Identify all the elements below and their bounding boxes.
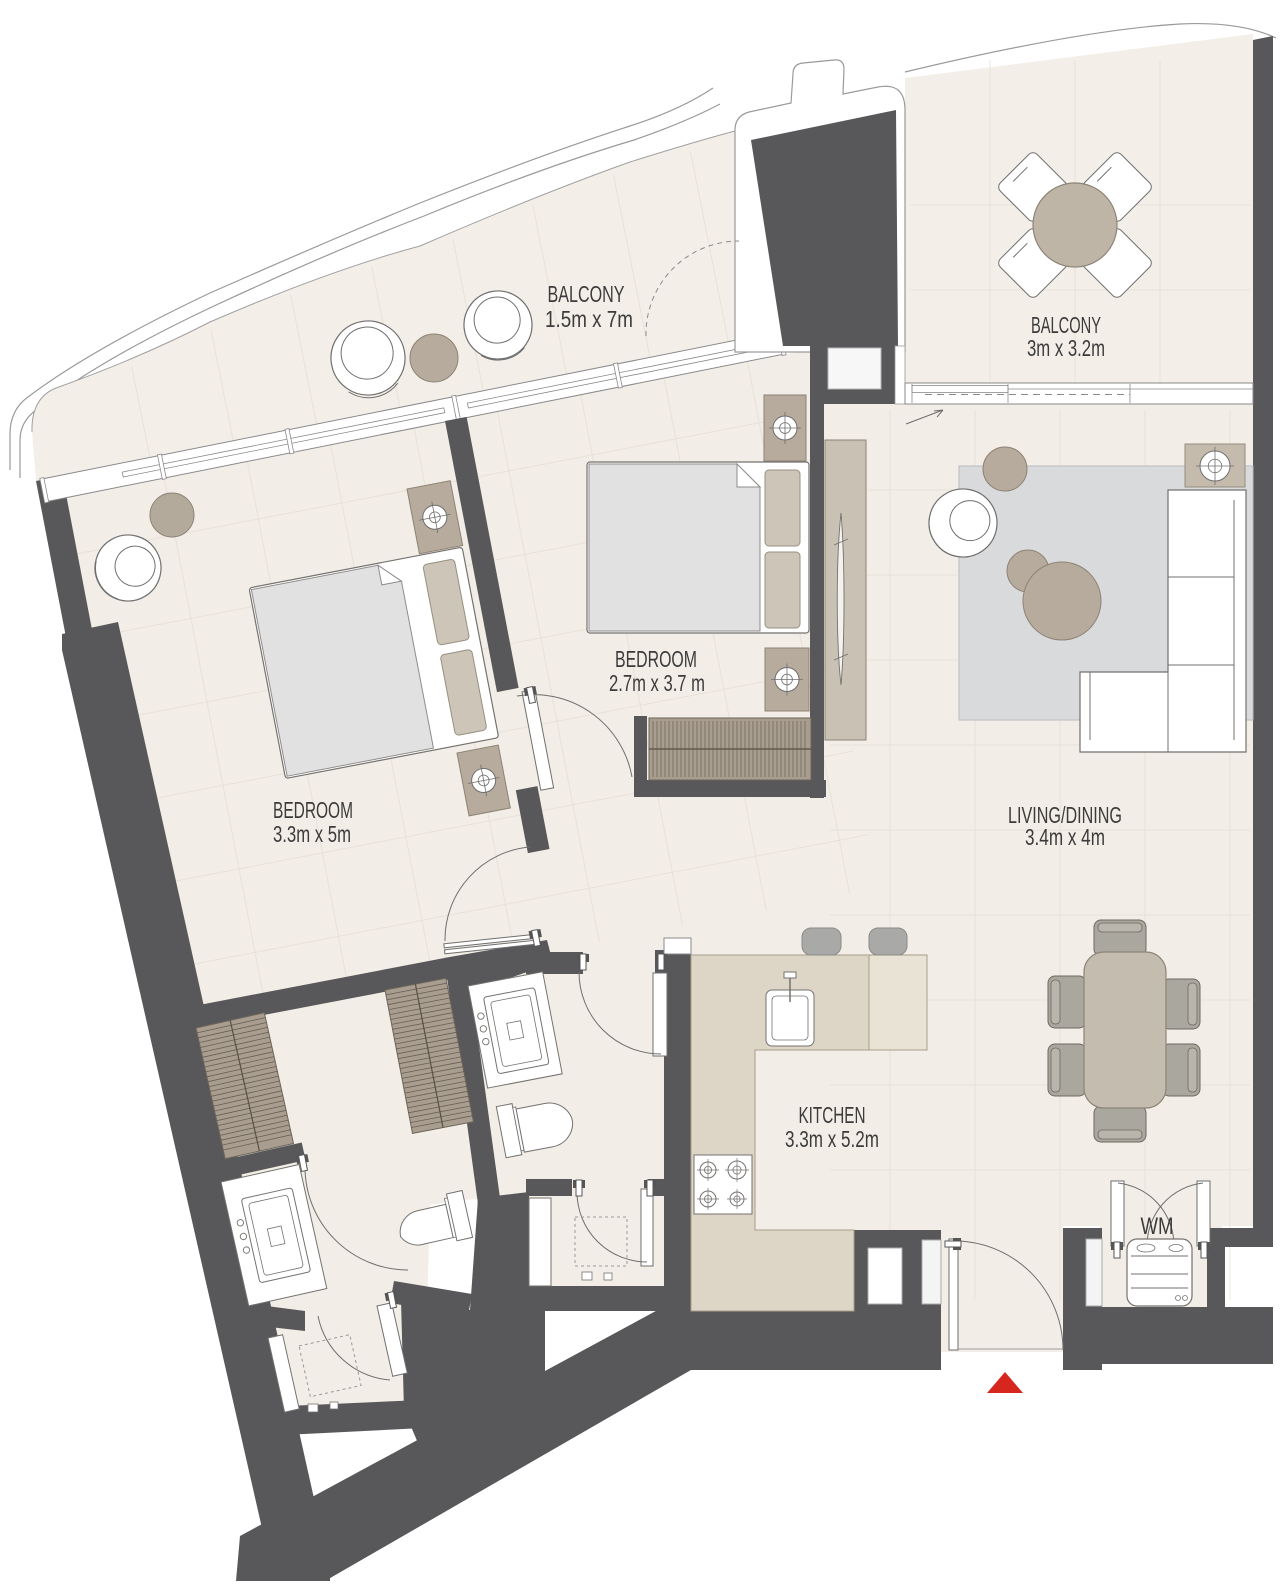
svg-text:BEDROOM: BEDROOM [273,797,353,823]
svg-text:3.4m x 4m: 3.4m x 4m [1025,824,1105,850]
svg-text:BALCONY: BALCONY [548,281,625,307]
svg-text:3m x 3.2m: 3m x 3.2m [1027,335,1105,361]
svg-text:3.3m x 5.2m: 3.3m x 5.2m [785,1126,879,1152]
svg-text:2.7m x 3.7 m: 2.7m x 3.7 m [609,670,705,696]
svg-text:3.3m x 5m: 3.3m x 5m [273,821,351,847]
svg-text:1.5m x 7m: 1.5m x 7m [545,306,633,332]
svg-text:BEDROOM: BEDROOM [615,646,697,672]
svg-text:WM: WM [1141,1213,1174,1240]
svg-text:KITCHEN: KITCHEN [799,1102,866,1128]
